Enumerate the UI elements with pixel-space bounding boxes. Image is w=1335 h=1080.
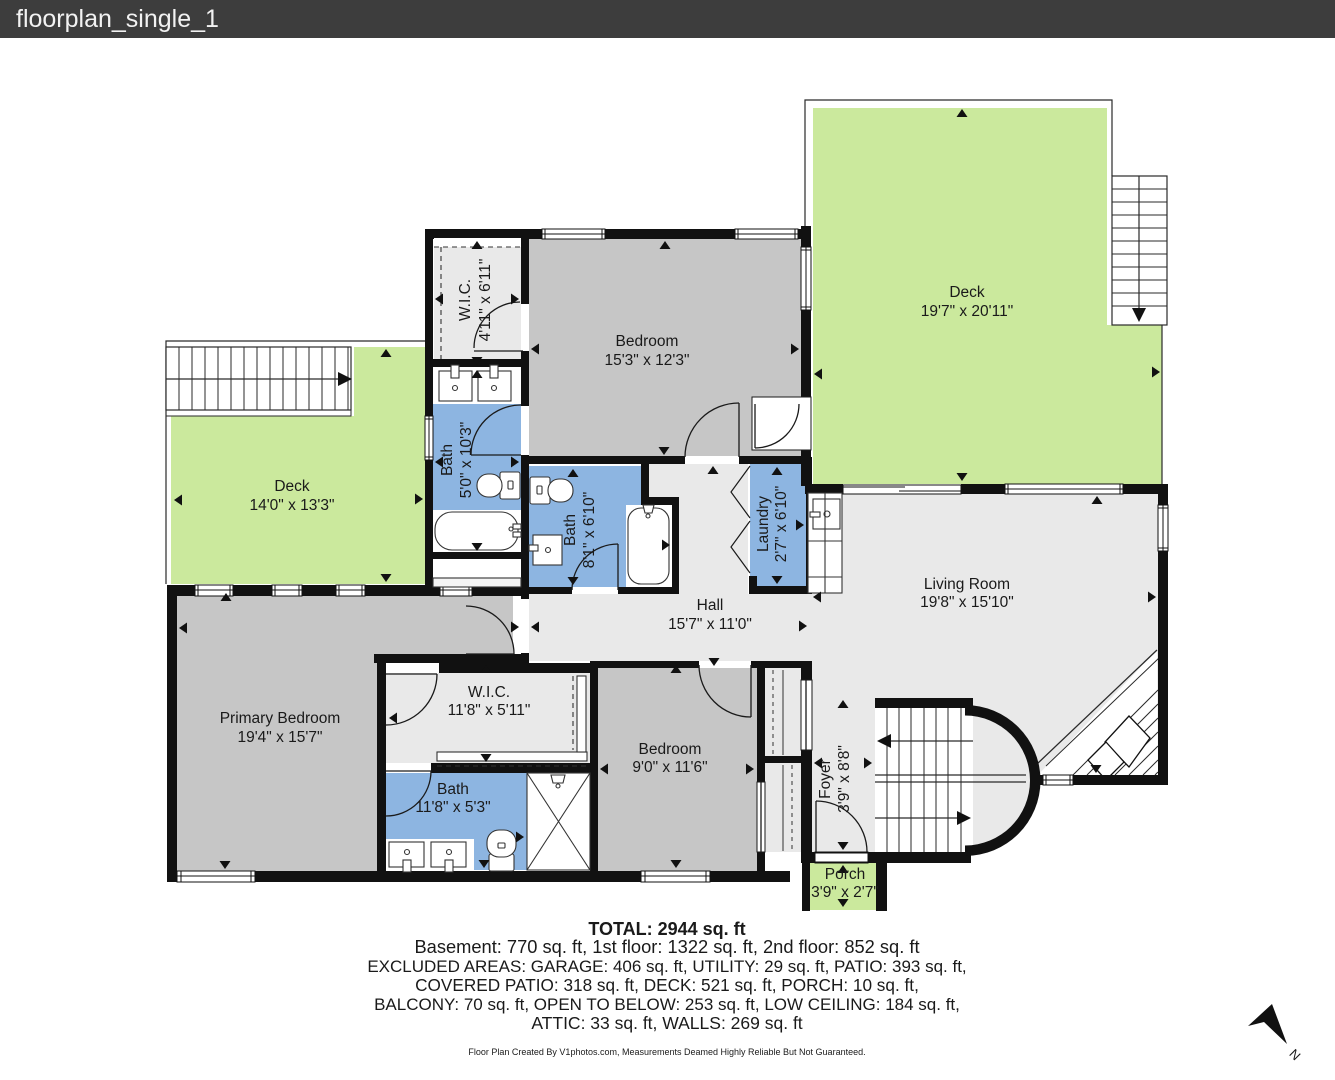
- svg-text:Deck: Deck: [274, 478, 310, 495]
- svg-text:Bath: Bath: [439, 444, 456, 476]
- svg-text:19'7" x 20'11": 19'7" x 20'11": [921, 303, 1013, 320]
- svg-text:Living Room: Living Room: [924, 576, 1010, 593]
- svg-text:BALCONY: 70 sq. ft, OPEN TO BE: BALCONY: 70 sq. ft, OPEN TO BELOW: 253 s…: [374, 995, 960, 1014]
- svg-text:Laundry: Laundry: [755, 496, 772, 552]
- svg-text:15'3" x 12'3": 15'3" x 12'3": [604, 352, 689, 369]
- svg-text:Foyer: Foyer: [817, 759, 834, 799]
- svg-text:Bath: Bath: [562, 514, 579, 546]
- svg-text:2'7" x 6'10": 2'7" x 6'10": [773, 486, 790, 562]
- svg-text:EXCLUDED AREAS: GARAGE: 406 sq: EXCLUDED AREAS: GARAGE: 406 sq. ft, UTIL…: [367, 957, 966, 976]
- svg-text:14'0" x 13'3": 14'0" x 13'3": [249, 497, 334, 514]
- svg-text:Bedroom: Bedroom: [616, 333, 679, 350]
- svg-text:19'4" x 15'7": 19'4" x 15'7": [237, 729, 322, 746]
- svg-text:Basement: 770 sq. ft, 1st floo: Basement: 770 sq. ft, 1st floor: 1322 sq…: [414, 936, 919, 957]
- svg-text:19'8" x 15'10": 19'8" x 15'10": [920, 594, 1014, 611]
- svg-text:4'11" x 6'11": 4'11" x 6'11": [477, 259, 494, 342]
- svg-text:11'8" x 5'11": 11'8" x 5'11": [448, 702, 531, 719]
- svg-text:Deck: Deck: [949, 284, 985, 301]
- svg-text:9'0" x 11'6": 9'0" x 11'6": [632, 759, 707, 776]
- svg-text:W.I.C.: W.I.C.: [457, 279, 474, 321]
- svg-text:COVERED PATIO: 318 sq. ft, DEC: COVERED PATIO: 318 sq. ft, DECK: 521 sq.…: [415, 975, 919, 995]
- svg-text:5'0" x 10'3": 5'0" x 10'3": [458, 422, 475, 498]
- svg-text:Porch: Porch: [825, 866, 866, 883]
- svg-text:W.I.C.: W.I.C.: [468, 684, 510, 701]
- svg-text:floorplan_single_1: floorplan_single_1: [16, 5, 219, 33]
- svg-text:15'7" x 11'0": 15'7" x 11'0": [668, 616, 752, 633]
- svg-text:3'9" x 2'7": 3'9" x 2'7": [811, 884, 879, 901]
- svg-text:Bath: Bath: [437, 781, 469, 798]
- svg-text:Primary Bedroom: Primary Bedroom: [220, 710, 341, 727]
- svg-text:Bedroom: Bedroom: [639, 741, 702, 758]
- svg-text:ATTIC: 33 sq. ft, WALLS: 269 s: ATTIC: 33 sq. ft, WALLS: 269 sq. ft: [531, 1013, 802, 1033]
- svg-text:Floor Plan Created By V1photos: Floor Plan Created By V1photos.com, Meas…: [468, 1047, 865, 1057]
- svg-text:Hall: Hall: [697, 597, 724, 614]
- svg-text:3'9" x 8'8": 3'9" x 8'8": [836, 745, 853, 813]
- svg-text:11'8" x 5'3": 11'8" x 5'3": [415, 799, 490, 816]
- svg-text:8'1" x 6'10": 8'1" x 6'10": [581, 492, 598, 568]
